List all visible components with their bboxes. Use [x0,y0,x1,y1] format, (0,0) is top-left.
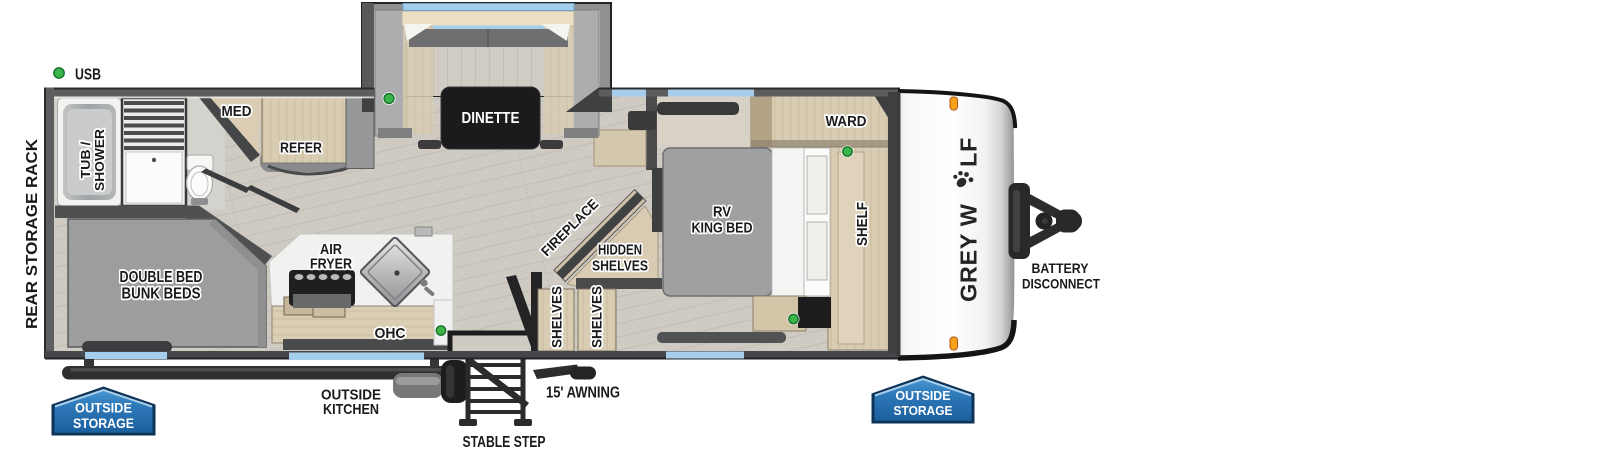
svg-text:DINETTE: DINETTE [462,110,520,127]
svg-text:TUB /: TUB / [78,141,93,178]
svg-text:MED: MED [222,103,252,120]
svg-text:SHOWER: SHOWER [92,128,107,191]
svg-text:HIDDEN: HIDDEN [598,243,642,259]
svg-text:SHELVES: SHELVES [592,259,648,275]
svg-text:BATTERY: BATTERY [1032,260,1090,276]
svg-text:WARD: WARD [826,113,867,130]
svg-text:STORAGE: STORAGE [894,403,953,418]
svg-text:BUNK BEDS: BUNK BEDS [122,286,201,303]
svg-text:STORAGE: STORAGE [73,416,134,431]
svg-text:DISCONNECT: DISCONNECT [1022,276,1100,292]
svg-text:KING BED: KING BED [692,220,753,237]
svg-text:STABLE STEP: STABLE STEP [463,434,546,451]
svg-text:OUTSIDE: OUTSIDE [896,388,951,403]
svg-text:SHELVES: SHELVES [549,286,565,348]
svg-text:OHC: OHC [375,325,406,342]
svg-text:GREY W: GREY W [956,203,982,302]
svg-text:KITCHEN: KITCHEN [323,401,379,418]
svg-text:SHELVES: SHELVES [589,286,605,348]
svg-text:FRYER: FRYER [310,256,352,273]
svg-text:RV: RV [713,204,731,221]
svg-text:15' AWNING: 15' AWNING [546,385,620,402]
svg-text:LF: LF [956,137,982,167]
svg-text:USB: USB [75,67,101,84]
svg-text:REFER: REFER [280,140,322,157]
svg-text:OUTSIDE: OUTSIDE [75,400,132,415]
svg-text:DOUBLE BED: DOUBLE BED [120,269,203,286]
svg-text:SHELF: SHELF [855,202,871,246]
svg-text:REAR STORAGE RACK: REAR STORAGE RACK [24,139,41,329]
